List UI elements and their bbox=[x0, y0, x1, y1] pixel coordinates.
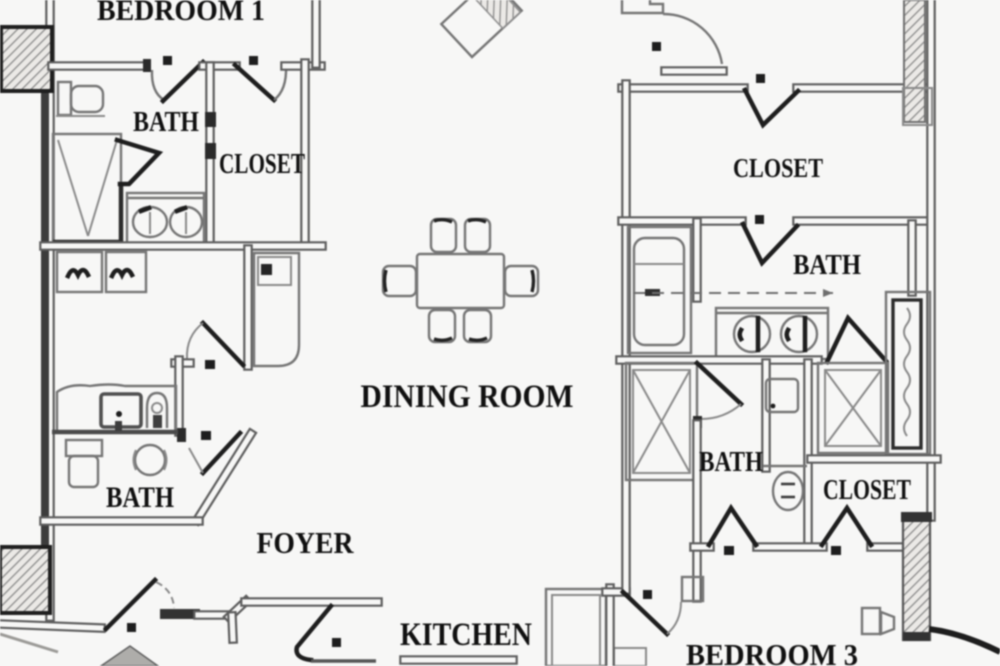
svg-text:BEDROOM 3: BEDROOM 3 bbox=[686, 637, 858, 666]
svg-text:BATH: BATH bbox=[133, 107, 199, 138]
svg-text:DINING ROOM: DINING ROOM bbox=[361, 379, 574, 415]
svg-text:BATH: BATH bbox=[793, 249, 861, 281]
svg-text:BATH: BATH bbox=[699, 447, 763, 478]
svg-text:CLOSET: CLOSET bbox=[219, 148, 305, 180]
svg-text:BEDROOM 1: BEDROOM 1 bbox=[97, 0, 265, 27]
svg-text:CLOSET: CLOSET bbox=[823, 475, 911, 506]
svg-text:KITCHEN: KITCHEN bbox=[400, 617, 532, 653]
svg-text:BATH: BATH bbox=[106, 481, 174, 514]
svg-text:CLOSET: CLOSET bbox=[733, 153, 823, 183]
svg-text:FOYER: FOYER bbox=[257, 525, 355, 560]
